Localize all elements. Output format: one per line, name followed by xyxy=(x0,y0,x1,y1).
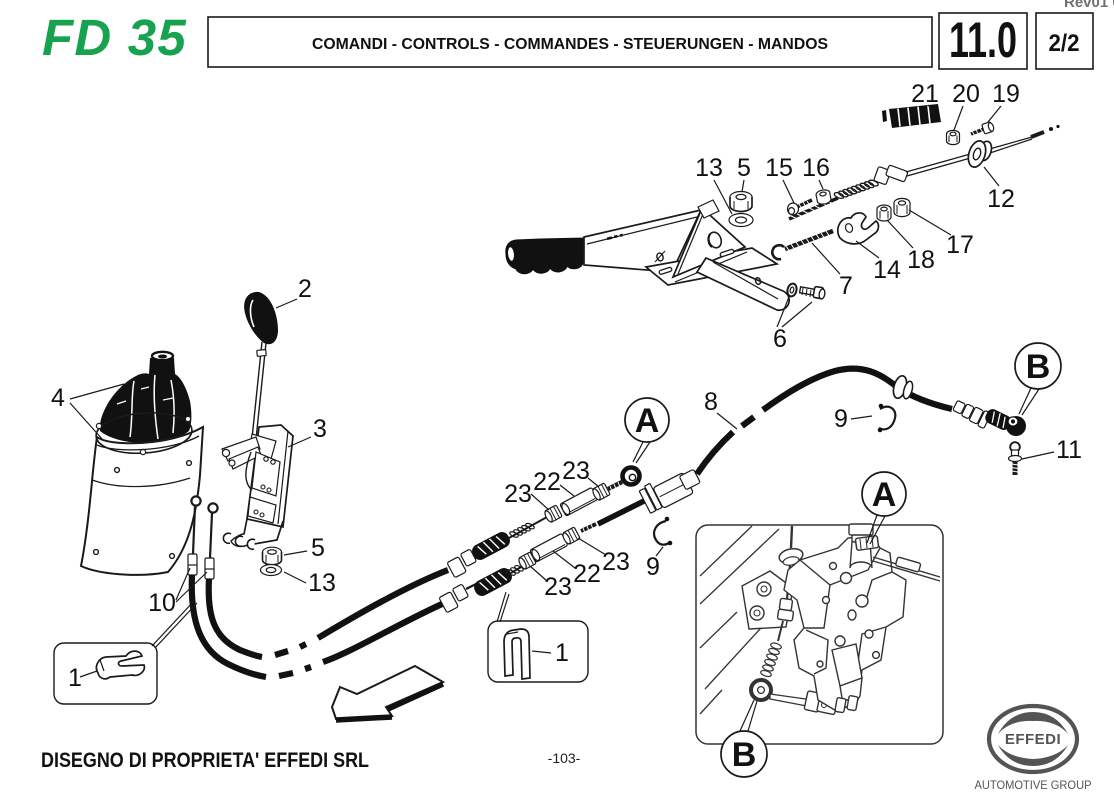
svg-text:AUTOMOTIVE GROUP: AUTOMOTIVE GROUP xyxy=(975,780,1092,792)
svg-text:22: 22 xyxy=(573,560,601,588)
svg-text:1: 1 xyxy=(68,664,82,692)
svg-text:B: B xyxy=(732,736,757,774)
svg-text:8: 8 xyxy=(704,388,718,416)
svg-text:23: 23 xyxy=(504,480,532,508)
svg-text:2: 2 xyxy=(298,275,312,303)
svg-text:EFFEDI: EFFEDI xyxy=(1005,731,1061,748)
svg-text:A: A xyxy=(872,476,897,514)
svg-text:9: 9 xyxy=(834,405,848,433)
svg-text:16: 16 xyxy=(802,154,830,182)
svg-text:19: 19 xyxy=(992,80,1020,108)
svg-text:20: 20 xyxy=(952,80,980,108)
svg-text:B: B xyxy=(1026,348,1051,386)
svg-text:11.0: 11.0 xyxy=(949,12,1017,68)
svg-text:22: 22 xyxy=(533,468,561,496)
svg-text:14: 14 xyxy=(873,256,901,284)
svg-text:COMANDI - CONTROLS - COMMANDES: COMANDI - CONTROLS - COMMANDES - STEUERU… xyxy=(312,36,828,53)
svg-text:-103-: -103- xyxy=(548,750,581,766)
svg-text:18: 18 xyxy=(907,246,935,274)
svg-text:FD 35: FD 35 xyxy=(42,9,187,66)
svg-text:23: 23 xyxy=(544,573,572,601)
svg-text:7: 7 xyxy=(839,272,853,300)
svg-text:A: A xyxy=(635,402,660,440)
svg-text:13: 13 xyxy=(308,569,336,597)
svg-text:11: 11 xyxy=(1056,436,1082,464)
svg-text:15: 15 xyxy=(765,154,793,182)
svg-text:3: 3 xyxy=(313,415,327,443)
svg-text:Rev01 04: Rev01 04 xyxy=(1064,0,1114,11)
svg-text:23: 23 xyxy=(602,548,630,576)
svg-text:1: 1 xyxy=(555,639,569,667)
svg-text:2/2: 2/2 xyxy=(1049,30,1080,57)
svg-text:12: 12 xyxy=(987,185,1015,213)
svg-text:23: 23 xyxy=(562,457,590,485)
svg-text:10: 10 xyxy=(148,589,176,617)
svg-text:21: 21 xyxy=(911,80,939,108)
svg-text:4: 4 xyxy=(51,384,65,412)
svg-text:9: 9 xyxy=(646,553,660,581)
svg-text:DISEGNO DI PROPRIETA' EFFEDI S: DISEGNO DI PROPRIETA' EFFEDI SRL xyxy=(41,749,369,772)
svg-text:13: 13 xyxy=(695,154,723,182)
svg-text:6: 6 xyxy=(773,325,787,353)
svg-text:5: 5 xyxy=(311,534,325,562)
svg-text:5: 5 xyxy=(737,154,751,182)
